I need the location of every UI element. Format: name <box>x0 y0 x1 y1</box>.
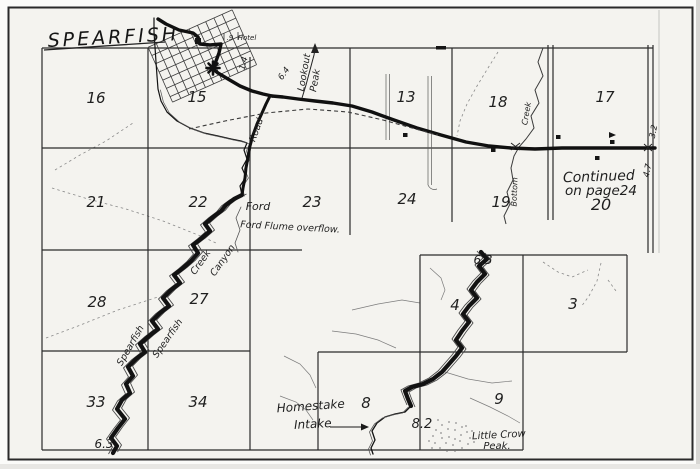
section-number-9: 9 <box>494 390 504 408</box>
false-bottom-label: Bottom <box>509 177 519 207</box>
mileage-hotel: .9 <box>227 34 234 42</box>
spearfish-area-map: SPEARFISH 16 15 13 18 17 21 22 23 24 19 … <box>0 0 700 469</box>
scan-edge-right <box>696 0 700 469</box>
section-number-17: 17 <box>595 88 615 106</box>
section-number-3: 3 <box>568 295 578 313</box>
mileage-8-2: 8.2 <box>412 417 433 432</box>
scan-edge-bottom <box>0 464 700 469</box>
hotel-label: Hotel <box>238 34 257 42</box>
little-crow-peak-label-2: Peak. <box>483 441 510 452</box>
mileage-6-3-southwest: 6.3 <box>94 437 113 451</box>
section-number-24: 24 <box>397 190 416 208</box>
section-number-28: 28 <box>87 293 106 311</box>
section-number-19: 19 <box>491 193 510 211</box>
town-star-symbol <box>207 62 220 75</box>
section-number-13: 13 <box>396 88 415 106</box>
section-number-16: 16 <box>86 89 105 107</box>
section-number-23: 23 <box>302 193 321 211</box>
section-number-4: 4 <box>450 296 460 314</box>
section-number-21: 21 <box>86 193 105 211</box>
section-number-27: 27 <box>189 290 209 308</box>
section-number-18: 18 <box>488 93 507 111</box>
section-number-33: 33 <box>86 393 105 411</box>
homestake-intake-label-2: Intake <box>294 416 332 432</box>
scanned-map-page: SPEARFISH 16 15 13 18 17 21 22 23 24 19 … <box>0 0 700 469</box>
section-number-22: 22 <box>188 193 207 211</box>
continued-note-line2: on page24 <box>565 183 637 199</box>
section-number-34: 34 <box>188 393 207 411</box>
section-number-8: 8 <box>361 394 371 412</box>
section-number-15: 15 <box>187 88 206 106</box>
mileage-6-3-block: 6.3 <box>473 253 492 267</box>
ford-label: Ford <box>246 200 272 213</box>
